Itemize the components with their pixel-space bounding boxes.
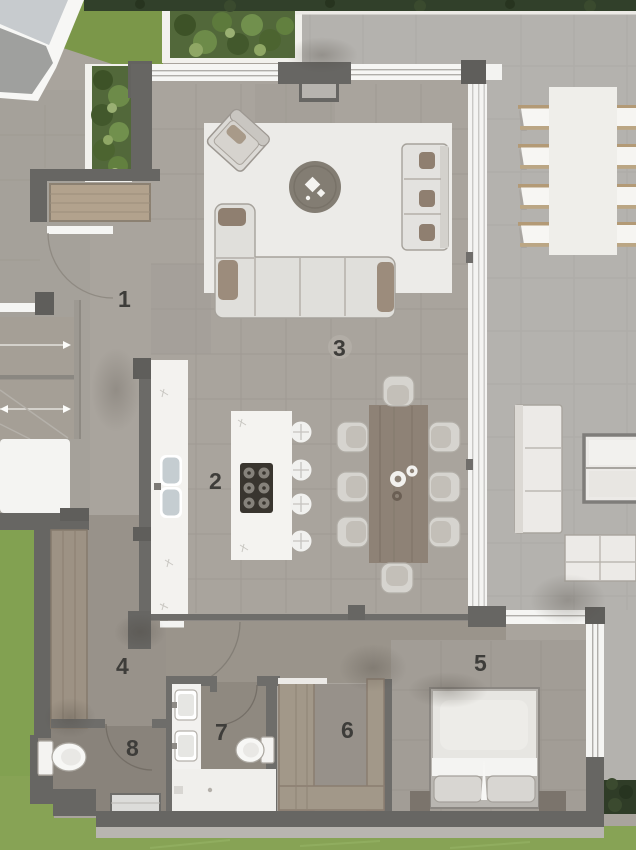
svg-text:2: 2 <box>209 468 222 494</box>
svg-text:5: 5 <box>474 650 487 676</box>
svg-text:1: 1 <box>118 286 131 312</box>
svg-text:7: 7 <box>215 719 228 745</box>
svg-text:8: 8 <box>126 735 139 761</box>
svg-text:6: 6 <box>341 717 354 743</box>
svg-text:3: 3 <box>333 335 346 361</box>
svg-text:4: 4 <box>116 653 129 679</box>
